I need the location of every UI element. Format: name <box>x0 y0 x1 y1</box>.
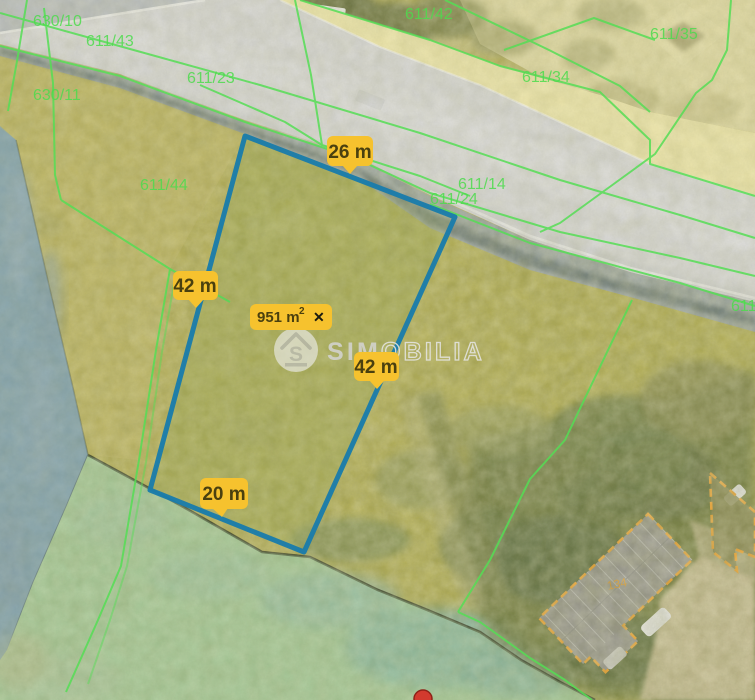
svg-text:42 m: 42 m <box>354 357 397 378</box>
svg-text:✕: ✕ <box>313 309 325 325</box>
svg-text:42 m: 42 m <box>173 276 216 297</box>
svg-text:611/43: 611/43 <box>86 33 134 50</box>
svg-text:26 m: 26 m <box>328 142 371 163</box>
svg-text:630/11: 630/11 <box>33 87 81 104</box>
svg-text:630/10: 630/10 <box>33 13 82 30</box>
svg-text:611/35: 611/35 <box>650 26 698 43</box>
svg-text:611/34: 611/34 <box>522 69 570 86</box>
svg-text:611/42: 611/42 <box>405 6 453 23</box>
svg-text:611/23: 611/23 <box>187 70 235 87</box>
svg-text:20 m: 20 m <box>202 484 245 505</box>
svg-text:611/: 611/ <box>731 298 755 315</box>
svg-text:951 m: 951 m <box>257 309 300 326</box>
svg-text:611/44: 611/44 <box>140 177 188 194</box>
svg-text:2: 2 <box>299 306 305 317</box>
svg-text:S: S <box>289 343 303 366</box>
svg-text:611/24: 611/24 <box>430 191 478 208</box>
